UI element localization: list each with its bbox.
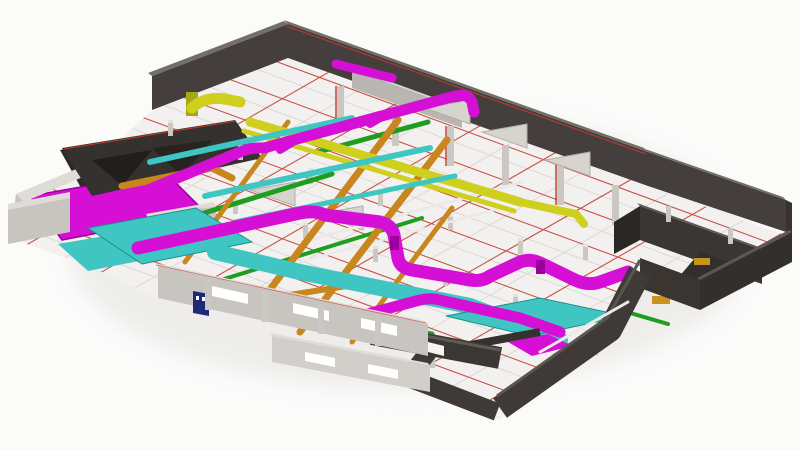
bim-model-viewport[interactable] [0,0,800,450]
bim-3d-render [0,0,800,450]
